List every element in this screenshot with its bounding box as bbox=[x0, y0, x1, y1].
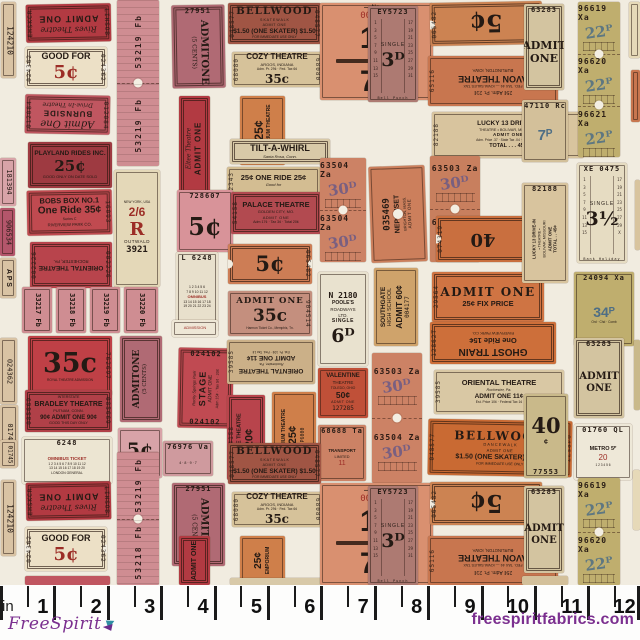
freespirit-logo: FreeSpirit bbox=[8, 614, 118, 634]
ruler-tick-major bbox=[320, 586, 323, 620]
ticket-ey5723: EY57231 3 5 7 9 11 13 1517 19 21 23 25 2… bbox=[368, 6, 418, 102]
ticket-burnside: 012084012084Admit OneBURNSIDEDrive-In Th… bbox=[25, 94, 111, 134]
ticket-edge-d1 bbox=[633, 470, 640, 530]
ticket-074319-40: 07431940 bbox=[436, 216, 530, 262]
ticket-bradley: 085669085669INTERSTATEBRADLEY THEATREPUT… bbox=[25, 390, 112, 432]
ticket-outwald-2-6: NEW YORK, USA2/6ROUTWALD3921 bbox=[114, 170, 160, 287]
ticket-strip-53219: 53219 Fb53219 Fb bbox=[117, 0, 159, 166]
ticket-erskine-2: ADMIT ONE bbox=[179, 536, 210, 585]
ticket-01760: 01760 QLMETRO 5ᴾ201 2 3 4 5 6 bbox=[574, 424, 632, 480]
ticket-one-ride-25c: 234325¢ ONE RIDE 25¢Good for bbox=[227, 167, 320, 195]
ticket-63283-2: 63283ADMITONE bbox=[574, 338, 624, 418]
ticket-southgate: SOUTHGATEHIGH SCHOOLADMIT 60¢004177 bbox=[374, 268, 418, 346]
ruler-unit-label: in bbox=[2, 598, 14, 615]
ticket-strip-96619-2: 96619 Xa22ᴾ96620 Xa22ᴾ bbox=[578, 478, 620, 585]
ruler-tick-major bbox=[214, 586, 217, 620]
ticket-aps: A P S bbox=[0, 258, 16, 298]
ticket-bellwood-skate: 048577048577BELLWOODS K A T E W A L KADM… bbox=[228, 3, 321, 44]
ticket-strip-024362: 024362 bbox=[0, 338, 17, 404]
ticket-edge-a1 bbox=[629, 2, 640, 58]
ticket-edge-a2 bbox=[631, 70, 640, 122]
ticket-ey5723-2: EY57231 3 5 7 9 11 13 1517 19 21 23 25 2… bbox=[368, 486, 418, 585]
ticket-63283-3: 63283ADMITONE bbox=[524, 486, 564, 573]
ticket-strip-63503-b: 63503 Za30ᴰ63504 Za30ᴰ bbox=[372, 353, 422, 483]
ticket-728607-5c: 7286075¢ bbox=[177, 190, 233, 252]
ticket-admit-5-cents-side: ADMITONE(5 CENTS) bbox=[120, 336, 162, 422]
ticket-oriental-11c: 39585ORIENTAL THEATRERochester, Pa.ADMIT… bbox=[227, 340, 315, 384]
ticket-oriental-theatre-red: 002226002226ORIENTAL THEATREROCHESTER, P… bbox=[30, 242, 112, 288]
ticket-68688: 68688 TaTRANSPORTLIMITED11 bbox=[318, 425, 366, 481]
ticket-strip-33218: 33218 Fb bbox=[56, 287, 86, 333]
fabric-swatch-image: 124210EHSKCRLIHSOBRives TheatreADMIT ONE… bbox=[0, 0, 640, 640]
ruler-tick-major bbox=[427, 586, 430, 620]
ticket-181394: 181394 bbox=[0, 158, 16, 206]
ruler-tick-major bbox=[267, 586, 270, 620]
ticket-24094: 24094 Xa34ᴾOrd · Chd · Comb bbox=[574, 272, 634, 346]
ticket-neponset: 035469NEPONSETBRIGHTON, MASS.ADMIT ONE bbox=[368, 165, 427, 263]
ticket-stage: 024102024102Rocky Springs ParkSTAGEADMIT… bbox=[177, 348, 233, 429]
ticket-n2180: N 2180POOLE'SROADWAYSLTD.SINGLE6ᴰ bbox=[318, 272, 368, 366]
ticket-edge-b1 bbox=[635, 180, 640, 250]
ticket-erskine-admit: Eltee TheatreADMIT ONE bbox=[179, 96, 210, 200]
ticket-76976: 76976 Va4 · 8 · 9 · 7 bbox=[163, 441, 213, 476]
ticket-edge-c1 bbox=[634, 340, 640, 410]
ticket-906534: 906534 bbox=[0, 208, 15, 256]
ruler-tick-major bbox=[160, 586, 163, 620]
ruler: 123456789101112 in FreeSpirit freespirit… bbox=[0, 585, 640, 640]
ticket-rives-theatre: EHSKCRLIHSOBRives TheatreADMIT ONE bbox=[26, 3, 112, 42]
ticket-bellwood-skate-2: 048577048577BELLWOODS K A T E W A L KADM… bbox=[228, 443, 321, 484]
ticket-xe0475: XE 04751 3 5 7 9 11 13 1517 19 21 23 25 … bbox=[577, 163, 627, 263]
ticket-strip-33219: 33219 Fb bbox=[90, 287, 120, 333]
website-url: freespiritfabrics.com bbox=[472, 611, 634, 629]
ticket-good-for-5c-2: 024362024362GOOD FOR5¢ bbox=[25, 527, 107, 571]
ticket-cozy-2: 6808068080COZY THEATREARGOS, INDIANAAdm.… bbox=[232, 492, 322, 527]
ruler-number: 8 bbox=[396, 596, 422, 619]
ticket-admission-stub: ADMISSION bbox=[172, 320, 218, 337]
ticket-35c-big: 76269735cROYAL THEATRE ADMISSION bbox=[28, 336, 112, 396]
ticket-82188-lucky: 82188LUCKY 13 DRIVE-IN• THEATRE •BOLIVAR… bbox=[522, 183, 568, 283]
ticket-admit-one-35c: 904514ADMIT ONE35cHarmon Ticket Co., Mem… bbox=[228, 291, 312, 336]
ticket-6248-bus: 6248OMNIBUS TICKET1 2 3 4 5 6 7 8 9 10 1… bbox=[22, 437, 112, 484]
ruler-number: 3 bbox=[129, 596, 155, 619]
ticket-47110: 47110 Rc7ᴾ bbox=[522, 100, 568, 162]
ticket-strip-53219-2: 53219 Fb53218 Fb bbox=[117, 452, 159, 585]
ticket-strip-33220: 33220 Fb bbox=[124, 287, 158, 333]
ruler-number: 6 bbox=[289, 596, 315, 619]
ticket-5c-salmon: 0654825¢ bbox=[228, 244, 312, 284]
ticket-strip-63504: 63504 Za30ᴰ63504 Za30ᴰ bbox=[320, 158, 366, 262]
ruler-number: 5 bbox=[236, 596, 262, 619]
freespirit-logo-text: FreeSpirit bbox=[8, 614, 101, 634]
ruler-tick-major bbox=[374, 586, 377, 620]
ticket-strip-01745: 01745 bbox=[0, 440, 17, 468]
fabric-print: 124210EHSKCRLIHSOBRives TheatreADMIT ONE… bbox=[0, 0, 640, 586]
ticket-good-for-5c: 024362024362GOOD FOR5¢ bbox=[25, 47, 107, 88]
ticket-palace-theatre: 54158PALACE THEATREGOLDEN CITY, MO.ADMIT… bbox=[231, 192, 321, 234]
ticket-admit-one-5-cents: 27951ADMITONE(5 CENTS) bbox=[171, 5, 225, 89]
ruler-number: 4 bbox=[183, 596, 209, 619]
ticket-47110-2 bbox=[522, 576, 568, 585]
ticket-playland: PLAYLAND RIDES INC.25¢GOOD ONLY ON DATE … bbox=[28, 142, 112, 188]
ticket-tilt-2 bbox=[230, 578, 330, 585]
ticket-strip-33217: 33217 Fb bbox=[22, 287, 52, 333]
ticket-valentine: VALENTINETHEATRETOLEDO, OHIO50¢ADMIT ONE… bbox=[318, 368, 368, 418]
ruler-number: 7 bbox=[343, 596, 369, 619]
ticket-strip-124210: 124210 bbox=[1, 2, 16, 78]
ticket-admit-one-63283: 63283ADMITONE bbox=[524, 4, 564, 90]
ticket-cozy-theatre: 6808068080COZY THEATREARGOS, INDIANAAdm.… bbox=[232, 52, 322, 87]
butterfly-icon bbox=[103, 619, 118, 631]
ticket-bobs: 16093BOBS BOX NO.1One Ride 35¢Series CRI… bbox=[27, 189, 113, 235]
ticket-strip-124210-2: 124210 bbox=[1, 480, 16, 556]
ticket-ghost-train: 12862TGHOST TRAINOne Ride 15¢RIVERVIEW P… bbox=[430, 322, 556, 364]
ticket-40c-khaki: 7755340¢ bbox=[524, 394, 568, 478]
ticket-burnside-2 bbox=[25, 576, 110, 585]
ticket-tilt-a-whirl: TILT-A-WHIRLSanta Rosa, Conn. bbox=[230, 139, 330, 164]
ticket-rives-2: EHSKCRLIHSOBRives TheatreADMIT ONE bbox=[26, 481, 112, 520]
ticket-strip-96619: 96619 Xa22ᴾ96620 Xa22ᴾ96621 Xa22ᴾ bbox=[578, 2, 620, 157]
